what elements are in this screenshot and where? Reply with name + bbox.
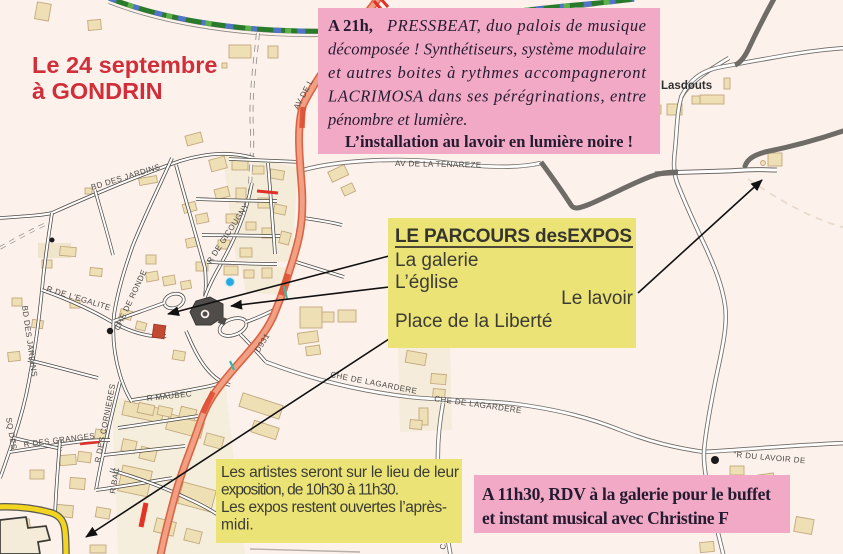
svg-text:décomposée ! Synthétiseurs, sy: décomposée ! Synthétiseurs, système modu… [328,40,646,59]
svg-text:midi.: midi. [221,517,254,534]
svg-text:L’installation au lavoir en lu: L’installation au lavoir en lumière noir… [345,132,633,151]
svg-text:Les expos restent ouvertes l’a: Les expos restent ouvertes l’après- [221,499,447,516]
svg-text:A 11h30, RDV à la galerie pour: A 11h30, RDV à la galerie pour le buffet [482,484,771,504]
svg-text:Les artistes seront sur le lie: Les artistes seront sur le lieu de leur [221,464,459,481]
svg-text:exposition, de 10h30 à 11h30.: exposition, de 10h30 à 11h30. [221,482,399,499]
svg-text:LE PARCOURS desEXPOS: LE PARCOURS desEXPOS [395,226,632,247]
svg-text:et autres boites à rythmes acc: et autres boites à rythmes accompagneron… [328,63,646,82]
svg-text:A 21h,: A 21h, [328,16,373,35]
svg-text:Le 24 septembre: Le 24 septembre [32,52,217,78]
svg-text:AV DE LA TENAREZE: AV DE LA TENAREZE [395,159,482,170]
svg-text:PRESSBEAT, duo palois de musiq: PRESSBEAT, duo palois de musique [386,16,646,35]
svg-text:L’église: L’église [395,272,458,293]
svg-text:pénombre et lumière.: pénombre et lumière. [327,110,467,129]
svg-text:Le lavoir: Le lavoir [561,288,633,309]
svg-text:La galerie: La galerie [395,250,478,271]
svg-text:Place de la Liberté: Place de la Liberté [395,311,552,332]
svg-text:et instant musical avec Christ: et instant musical avec Christine F [482,508,729,528]
svg-text:Lasdouts: Lasdouts [661,80,712,92]
svg-text:LACRIMOSA dans ses pérégrinati: LACRIMOSA dans ses pérégrinations, entre [327,87,646,106]
svg-text:à GONDRIN: à GONDRIN [32,78,163,104]
